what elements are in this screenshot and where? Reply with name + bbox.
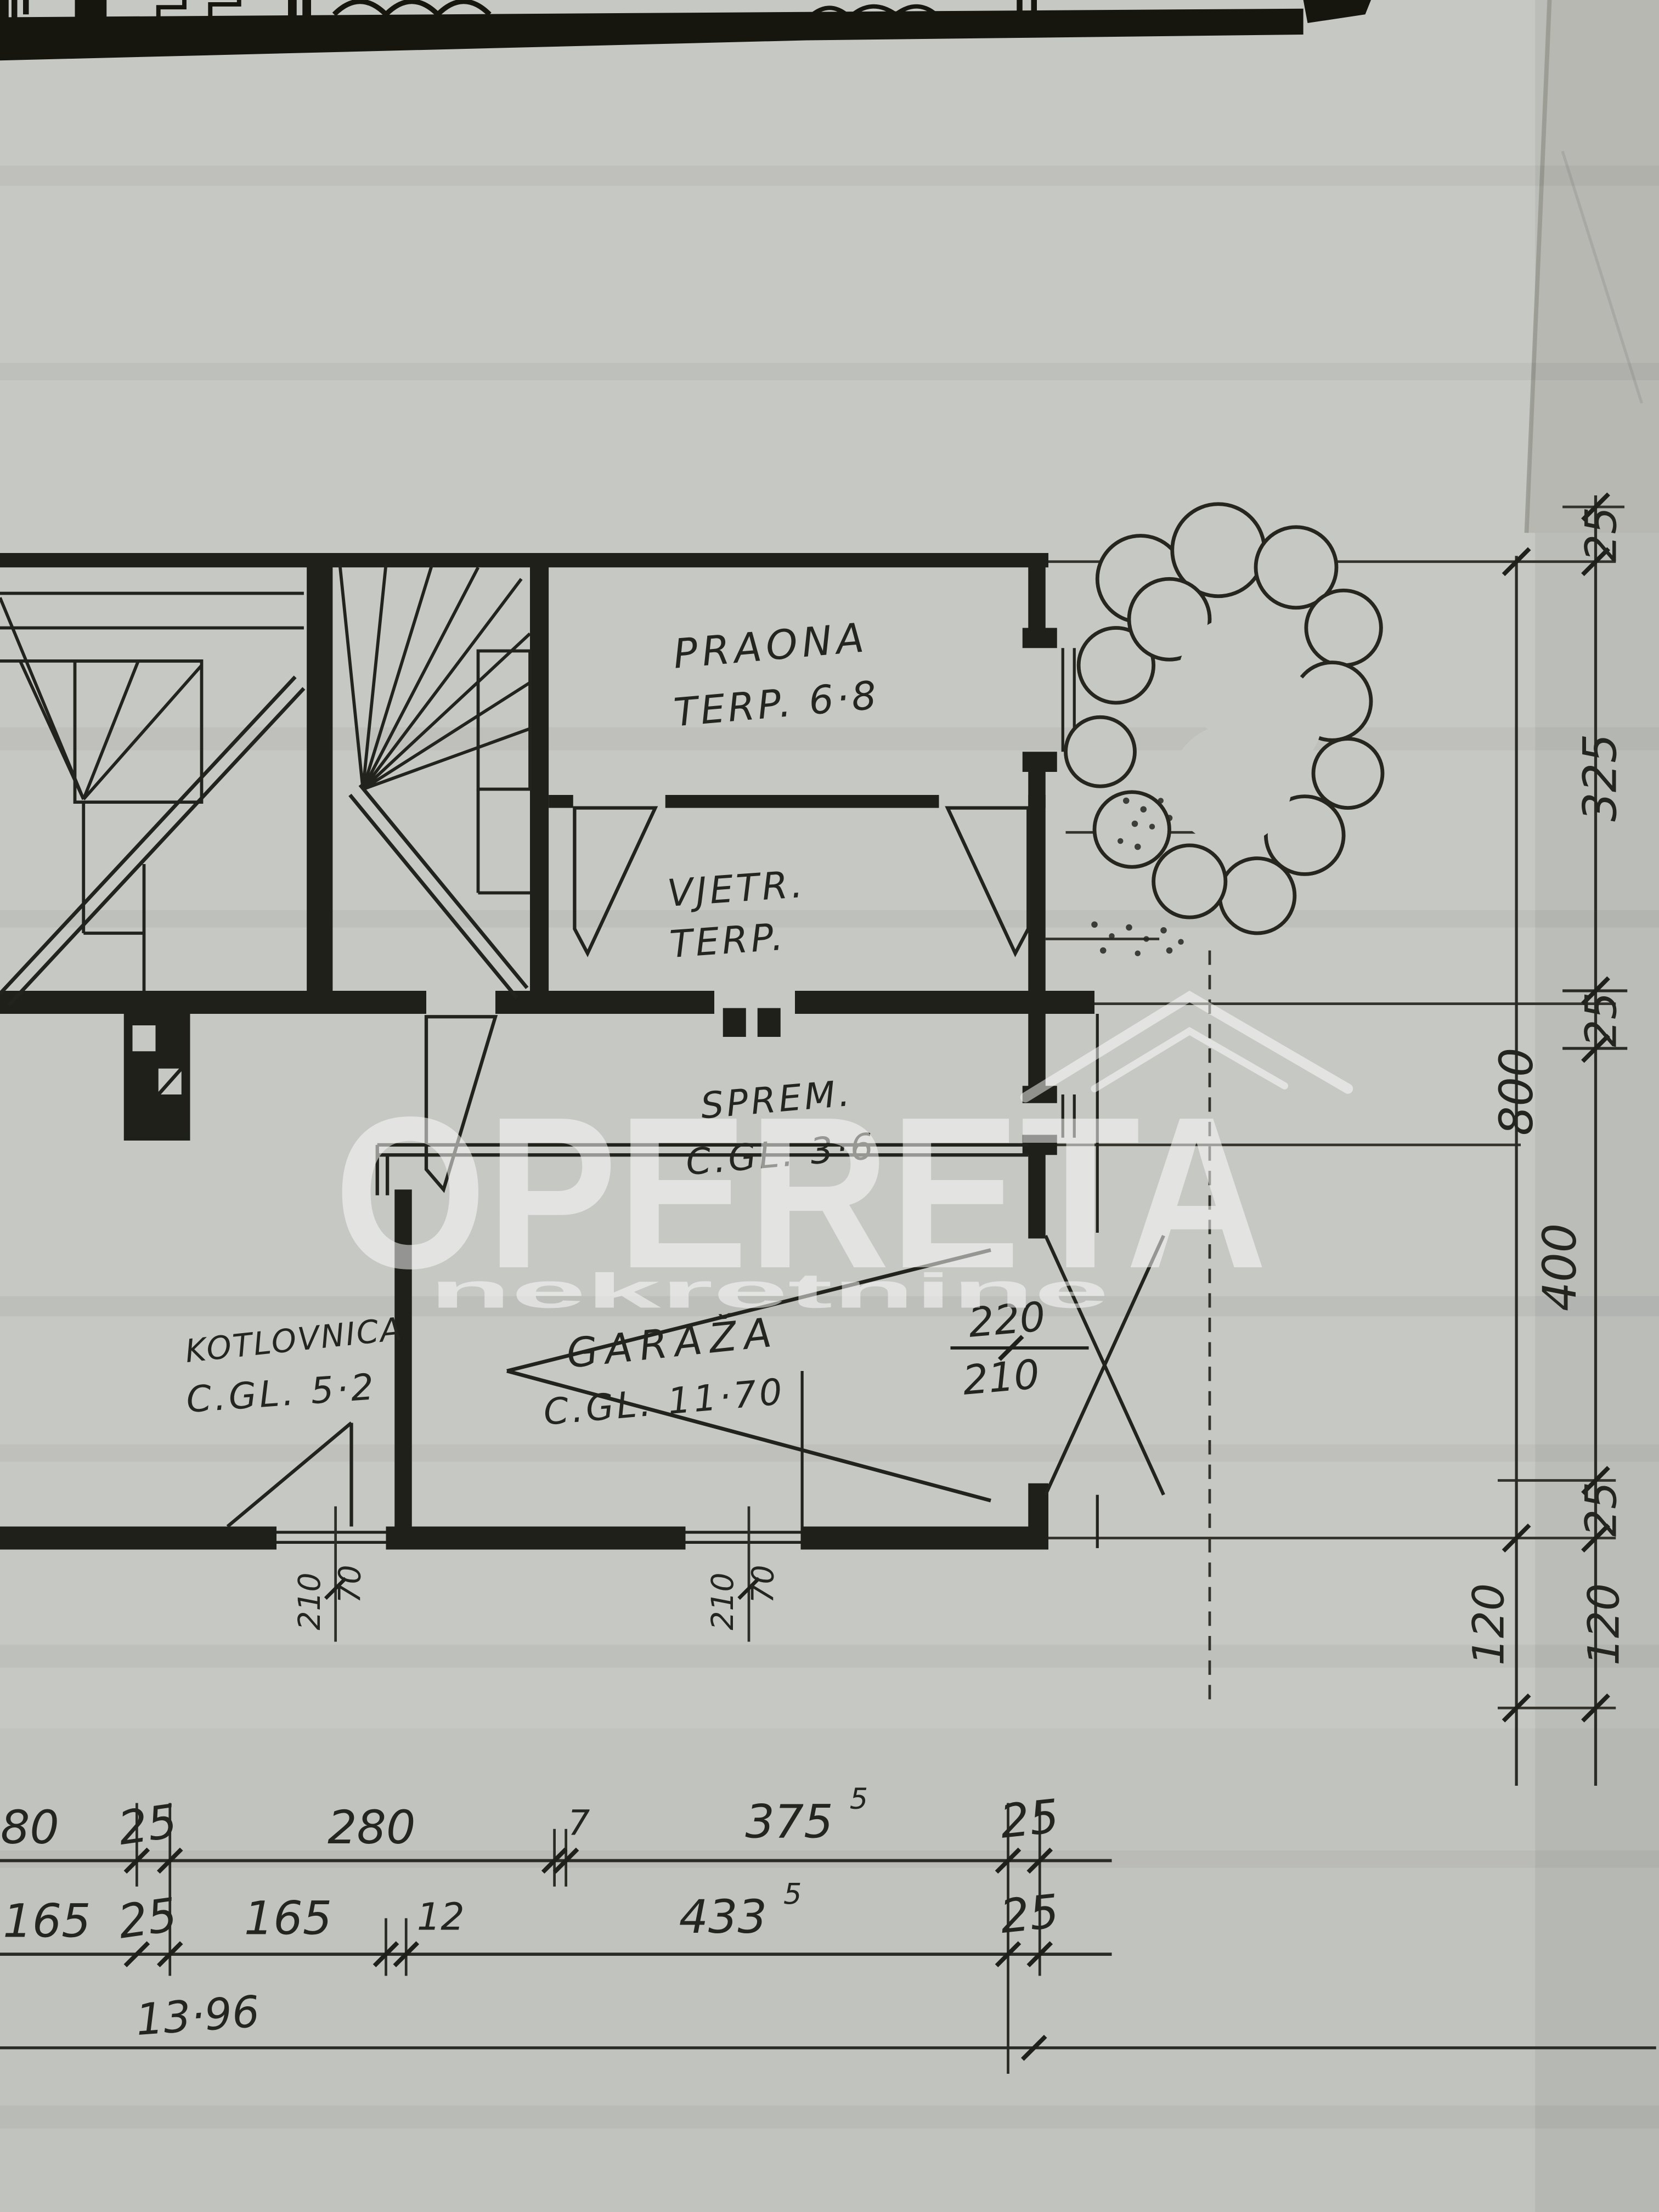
dim-bottom: 25 (997, 1884, 1062, 1944)
dim-right: 25 (1576, 507, 1626, 562)
dim-bottom: 12 (417, 1896, 465, 1939)
dim-bottom: 165 (244, 1891, 332, 1945)
dim-bottom: 433 (679, 1890, 767, 1944)
dim-bottom: 280 (328, 1801, 415, 1854)
dim-right: 25 (1576, 992, 1626, 1047)
dim-right: 800 (1489, 1048, 1543, 1136)
dim-sup: 5 (850, 1782, 868, 1816)
right-wall-upper (1028, 553, 1046, 634)
dim-right: 25 (1576, 1482, 1626, 1537)
dim-sup: 5 (783, 1877, 802, 1911)
door-pier (723, 1008, 746, 1037)
party-wall (307, 553, 332, 1008)
dim-bottom: 25 (115, 1888, 180, 1949)
door-pier (758, 1008, 781, 1037)
garage-door-height: 210 (961, 1351, 1041, 1404)
chimney-block (124, 991, 190, 1141)
window-width: 210 (705, 1572, 740, 1630)
stair-praona-wall (530, 553, 549, 1008)
floorplan-photo: 25 325 25 400 25 120 800 120 210 70 210 … (0, 0, 1659, 2212)
room-detail-vjetrobran: TERP. (668, 916, 787, 967)
dim-right: 400 (1533, 1223, 1587, 1311)
dim-right: 120 (1579, 1583, 1629, 1666)
dim-bottom: 25 (115, 1794, 180, 1855)
dim-right: 325 (1573, 733, 1627, 821)
window-height: 70 (746, 1565, 781, 1603)
dim-total-width: 13·96 (134, 1987, 261, 2046)
top-exterior-wall (0, 553, 1048, 567)
bottom-exterior-wall (801, 1527, 1049, 1550)
dim-right: 120 (1464, 1583, 1514, 1666)
window-width: 210 (292, 1572, 327, 1630)
dim-bottom: 25 (997, 1789, 1062, 1849)
dim-bottom: 7 (568, 1803, 590, 1843)
dim-bottom: 375 (745, 1795, 833, 1849)
dim-bottom: 165 (3, 1894, 91, 1948)
watermark-tagline: nekretnine (429, 1263, 1109, 1318)
dim-bottom: 280 (0, 1801, 59, 1854)
window-height: 70 (332, 1565, 367, 1603)
mid-wall (795, 991, 1094, 1014)
